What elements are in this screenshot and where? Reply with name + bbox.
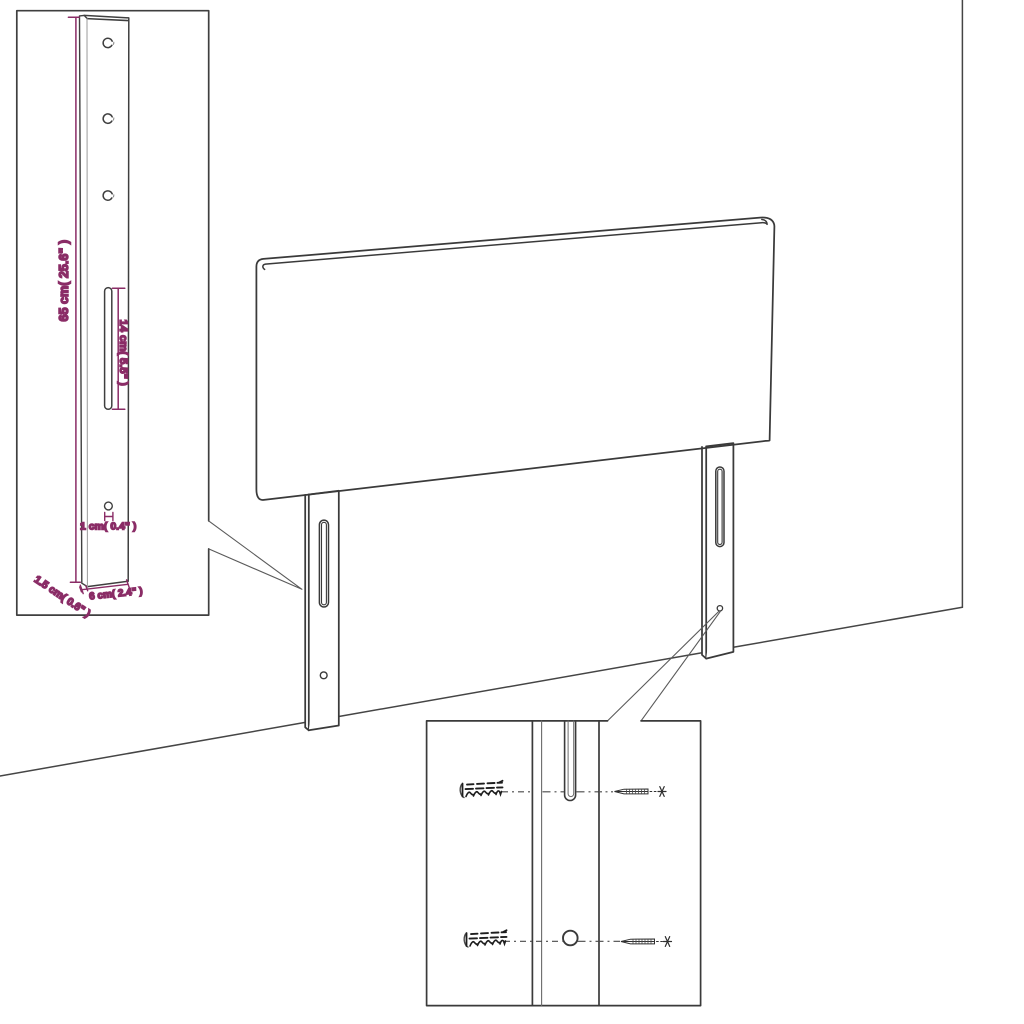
svg-text:65 cm( 25.6" ): 65 cm( 25.6" ) (57, 240, 71, 322)
svg-text:14 cm( 5.5" ): 14 cm( 5.5" ) (117, 320, 129, 387)
svg-text:1 cm( 0.4" ): 1 cm( 0.4" ) (80, 521, 136, 533)
svg-text:1.5 cm( 0.6" ): 1.5 cm( 0.6" ) (32, 574, 93, 620)
